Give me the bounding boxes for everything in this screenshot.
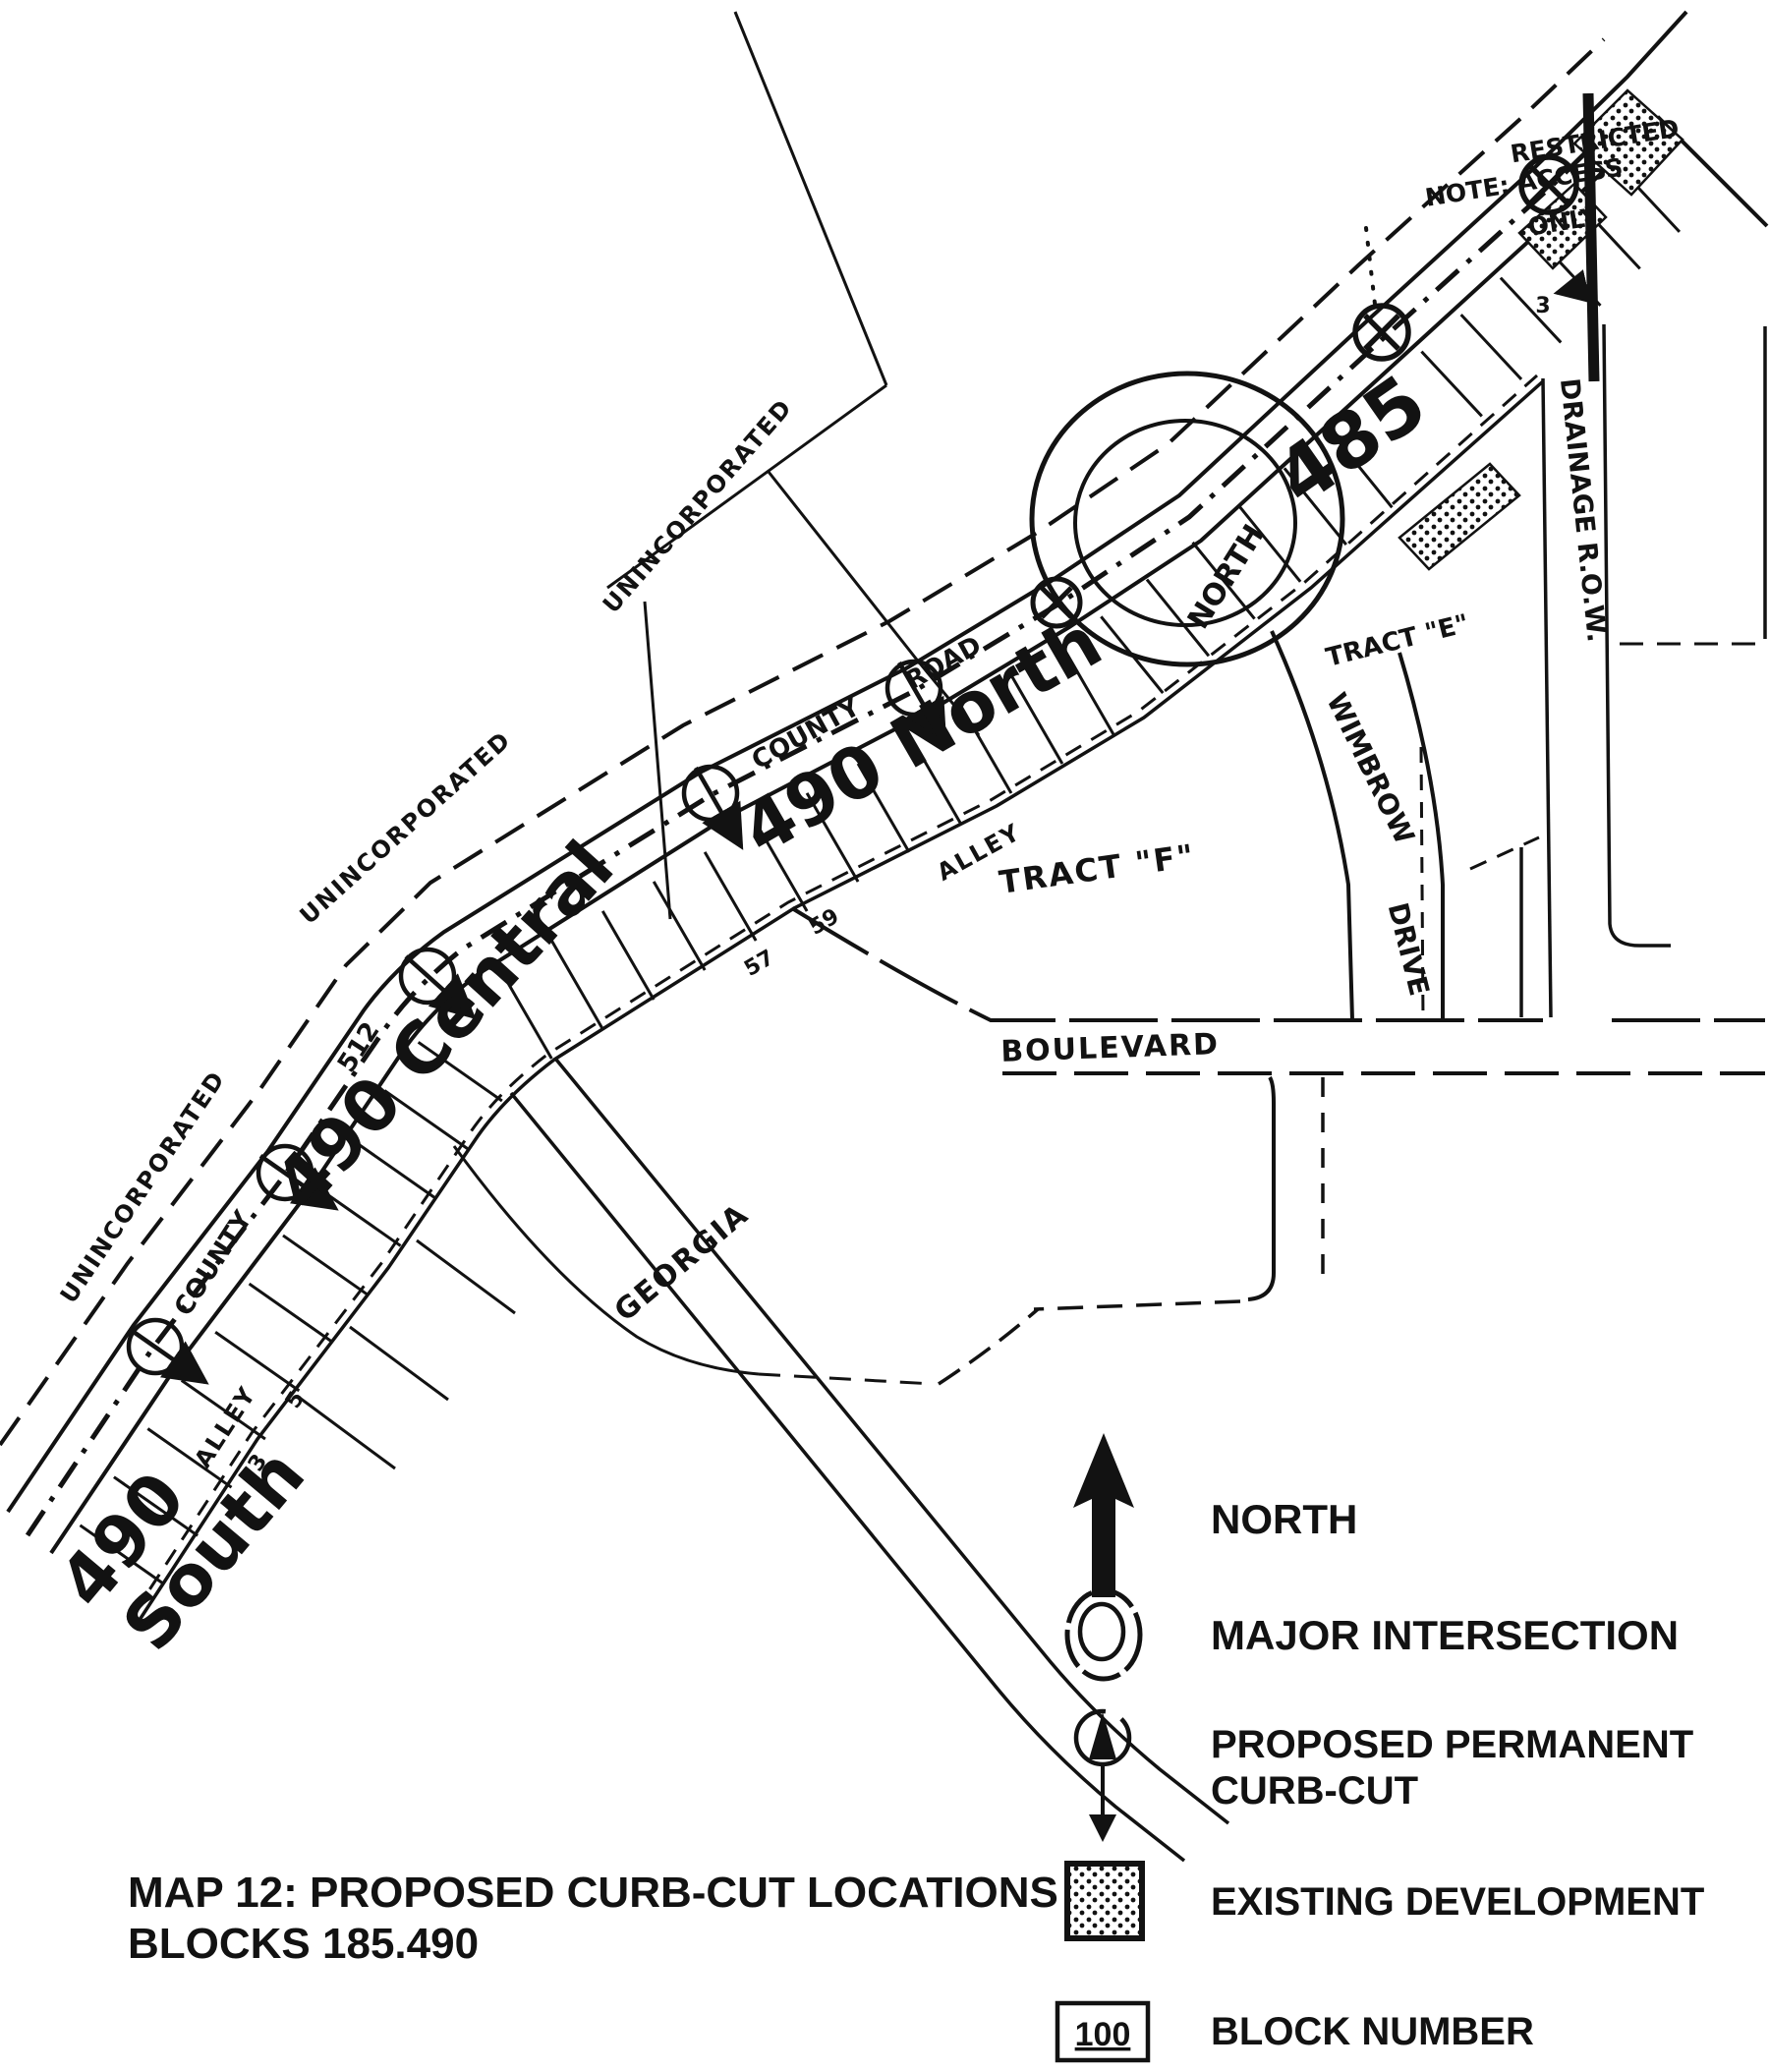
georgia-edge-ne	[556, 1060, 1228, 1823]
connector-dash	[759, 1374, 934, 1384]
map-title-line1: MAP 12: PROPOSED CURB-CUT LOCATIONS	[128, 1869, 1058, 1917]
boundary-line	[735, 12, 886, 385]
major-intersection-icon	[1067, 1590, 1140, 1679]
georgia-road	[511, 1060, 1228, 1861]
drainage-row-label: DRAINAGE R.O.W.	[1554, 376, 1612, 643]
block-label-490-south: 490 South	[43, 1384, 320, 1672]
lot-number: 3	[1535, 294, 1550, 318]
wimbrow-drive-label: DRIVE	[1382, 899, 1436, 999]
circle-x-symbol	[1355, 306, 1408, 359]
tract-f-label: TRACT "F"	[997, 836, 1197, 901]
right-edge-lines	[1470, 326, 1767, 1017]
unincorporated-label: UNINCORPORATED	[598, 393, 798, 618]
note-leader-dots	[1366, 228, 1376, 313]
road-edge-se	[51, 118, 1767, 1553]
boulevard-edge-north	[792, 908, 1765, 1020]
drainage-row-west	[1543, 378, 1551, 1017]
scanned-map-page: 490 North 490 Central 490 South 485 UNIN…	[0, 0, 1769, 2072]
map-title: MAP 12: PROPOSED CURB-CUT LOCATIONS BLOC…	[128, 1869, 1058, 1968]
boulevard-road	[792, 908, 1765, 1073]
block-divider-lines	[297, 1240, 515, 1468]
wimbrow-edge-west	[1272, 631, 1352, 1020]
existing-development-patch	[1399, 464, 1519, 569]
legend-major-intersection-label: MAJOR INTERSECTION	[1211, 1612, 1679, 1658]
existing-development-icon	[1067, 1864, 1142, 1938]
boulevard-label: BOULEVARD	[1000, 1027, 1221, 1069]
legend-curb-cut-label-line1: PROPOSED PERMANENT	[1211, 1723, 1693, 1766]
block-number-sample: 100	[1075, 2016, 1131, 2053]
curb-cut-icon	[1076, 1711, 1129, 1842]
map-canvas: 490 North 490 Central 490 South 485 UNIN…	[0, 0, 1769, 2072]
legend-existing-development-label: EXISTING DEVELOPMENT	[1211, 1880, 1704, 1924]
lot-number: 57	[740, 946, 778, 982]
block-label-485: 485	[1261, 359, 1443, 523]
block-label-490-central: 490 Central	[257, 826, 629, 1226]
legend-curb-cut-label-line2: CURB-CUT	[1211, 1769, 1418, 1813]
legend-block-number-label: BLOCK NUMBER	[1211, 2010, 1534, 2053]
drainage-row-east	[1604, 324, 1671, 946]
tract-e-label: TRACT "E"	[1323, 609, 1471, 673]
georgia-label: GEORGIA	[608, 1197, 756, 1329]
georgia-edge-sw	[511, 1093, 1184, 1861]
block-south-of-boulevard	[939, 1077, 1323, 1384]
legend-north-label: NORTH	[1211, 1496, 1357, 1542]
north-arrow-icon	[1073, 1433, 1134, 1597]
alley-dash	[134, 375, 1537, 1614]
unincorporated-label: UNINCORPORATED	[295, 725, 517, 929]
map-title-line2: BLOCKS 185.490	[128, 1920, 479, 1968]
boundary-line	[645, 602, 670, 919]
legend: NORTH MAJOR INTERSECTION PROPOSED PERMAN…	[1057, 1433, 1704, 2060]
